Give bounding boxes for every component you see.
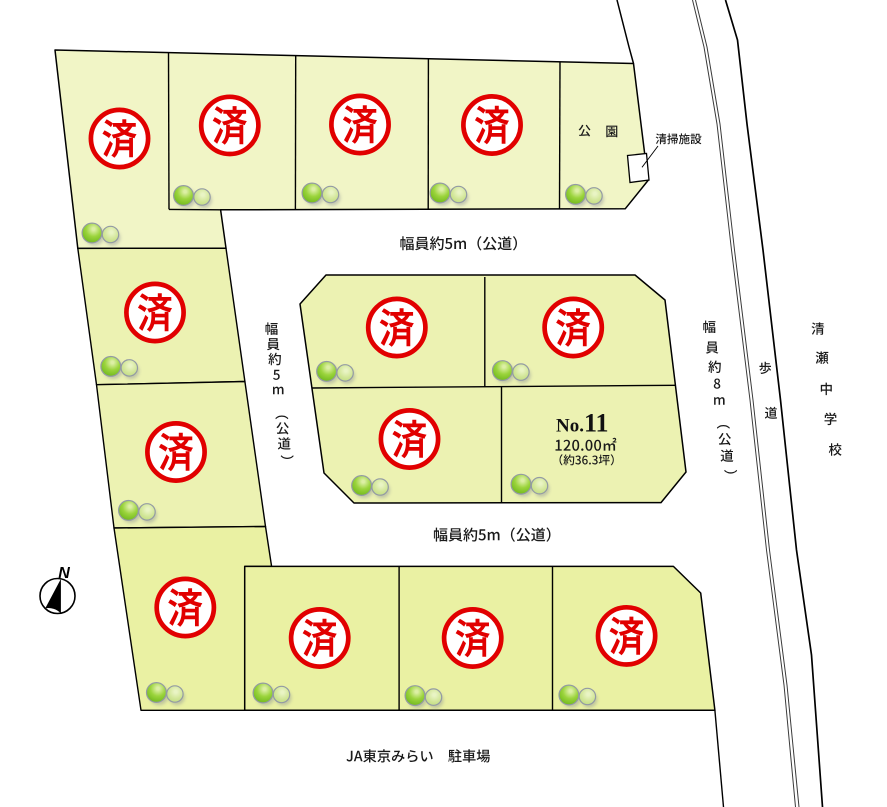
svg-text:N: N <box>58 565 70 582</box>
